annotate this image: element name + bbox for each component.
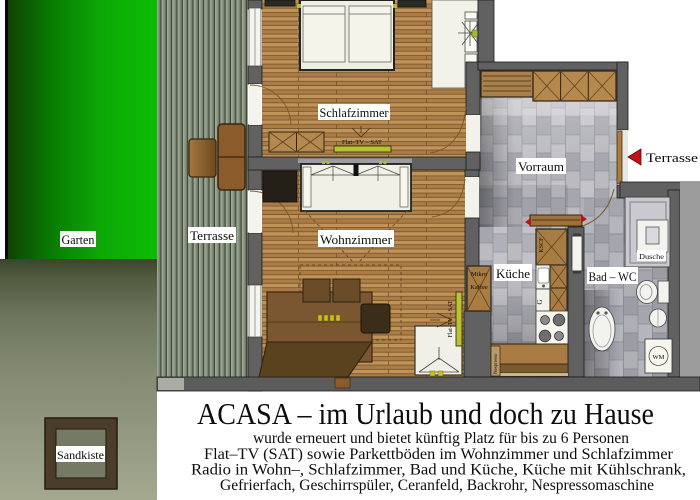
svg-text:KSCF: KSCF <box>539 237 545 253</box>
svg-text:Sandkiste: Sandkiste <box>57 448 104 462</box>
svg-text:Flat–TV – SAT: Flat–TV – SAT <box>342 139 382 146</box>
svg-text:Kaffee: Kaffee <box>470 284 488 291</box>
svg-text:Schlafzimmer: Schlafzimmer <box>320 105 390 120</box>
svg-text:Terrasse: Terrasse <box>190 228 234 243</box>
svg-text:Wohnzimmer: Wohnzimmer <box>320 232 393 247</box>
svg-text:WM: WM <box>653 354 665 361</box>
svg-text:Gefrierfach, Geschirrspüler, C: Gefrierfach, Geschirrspüler, Ceranfeld, … <box>220 477 654 494</box>
svg-text:G: G <box>536 299 544 304</box>
svg-text:Mikro: Mikro <box>471 271 487 278</box>
svg-text:Garten: Garten <box>62 232 95 247</box>
svg-text:Vorraum: Vorraum <box>518 159 564 174</box>
svg-text:Radio in Wohn–, Schlafzimmer,: Radio in Wohn–, Schlafzimmer, Bad und Kü… <box>191 462 686 479</box>
svg-text:Bad – WC: Bad – WC <box>589 269 637 284</box>
svg-text:Terrasse: Terrasse <box>646 150 698 165</box>
svg-text:wurde erneuert und bietet künf: wurde erneuert und bietet künftig Platz … <box>253 430 629 447</box>
svg-text:Küche: Küche <box>496 266 530 281</box>
svg-text:Nespresso: Nespresso <box>494 353 499 374</box>
svg-text:ACASA – im Urlaub und doch zu: ACASA – im Urlaub und doch zu Hause <box>197 396 654 431</box>
svg-text:Dusche: Dusche <box>639 252 665 261</box>
svg-text:Flat–TV (SAT) sowie Parkettböd: Flat–TV (SAT) sowie Parkettböden im Wohn… <box>204 446 674 463</box>
